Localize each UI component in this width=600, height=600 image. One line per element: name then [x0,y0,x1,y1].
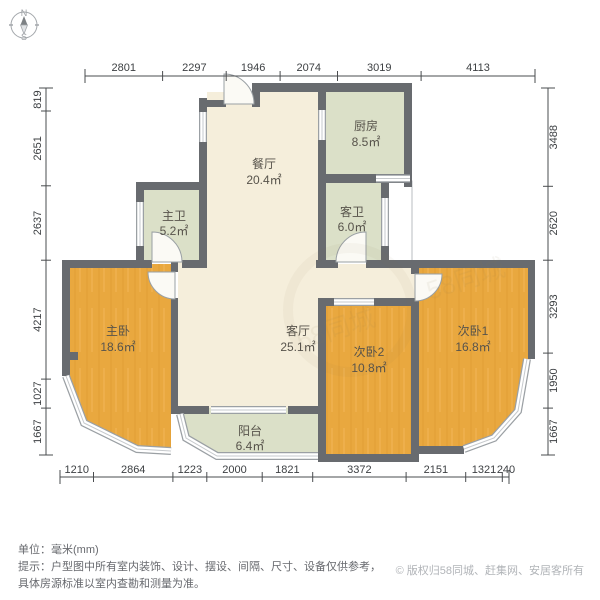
kitchen-floor [324,90,408,178]
dim-right-3: 1950 [548,368,560,392]
dim-bottom-6: 2151 [424,464,448,476]
room-area-bedroom1: 16.8㎡ [455,340,490,354]
room-label-master-bedroom: 主卧 [106,324,130,338]
dim-bottom-7: 1321 [472,464,496,476]
dim-bottom-3: 2000 [222,464,246,476]
dim-left-3: 4217 [32,307,44,331]
dim-top-1: 2297 [182,62,206,74]
dim-top-0: 2801 [112,62,136,74]
room-area-master-bath: 5.2㎡ [160,224,189,238]
dim-top-3: 2074 [297,62,321,74]
room-area-kitchen: 8.5㎡ [352,135,381,149]
dim-top-4: 3019 [367,62,391,74]
dim-right-4: 1667 [548,419,560,443]
dim-bottom-5: 3372 [347,464,371,476]
dim-bottom-0: 1210 [65,464,89,476]
room-label-balcony: 阳台 [238,423,262,438]
dim-left-1: 2651 [32,136,44,160]
dim-bottom-4: 1821 [275,464,299,476]
footer-notes: 单位：毫米(mm) 提示：户型图中所有室内装饰、设计、摆设、间隔、尺寸、设备仅供… [18,542,381,593]
room-label-guest-bath: 客卫 [340,204,364,219]
dim-left-4: 1027 [32,381,44,405]
dim-left-2: 2637 [32,211,44,235]
note-line-2: 具体房源标准以室内查勘和测量为准。 [18,576,381,593]
dim-right-2: 3293 [548,294,560,318]
room-area-living: 25.1㎡ [280,340,315,354]
entry-door [224,74,254,104]
room-label-kitchen: 厨房 [354,118,378,133]
dim-bottom-1: 2864 [121,464,145,476]
room-label-master-bath: 主卫 [162,209,186,223]
room-area-guest-bath: 6.0㎡ [338,220,367,234]
floorplan-page: N S [0,0,600,600]
dim-left-5: 1667 [32,419,44,443]
compass-icon: N S [9,8,39,42]
room-label-bedroom2: 次卧2 [354,345,385,359]
dim-right-0: 3488 [548,125,560,149]
unit-label: 单位：毫米(mm) [18,542,381,559]
dim-top-5: 4113 [466,62,490,74]
compass-north-label: N [21,8,28,18]
note-line-1: 提示：户型图中所有室内装饰、设计、摆设、间隔、尺寸、设备仅供参考， [18,559,381,576]
floorplan-canvas: N S [0,0,600,540]
room-area-balcony: 6.4㎡ [236,439,265,453]
room-area-master-bedroom: 18.6㎡ [100,340,135,354]
room-area-dining: 20.4㎡ [246,173,281,187]
dim-bottom-2: 1223 [178,464,202,476]
room-label-living: 客厅 [286,323,310,338]
room-label-bedroom1: 次卧1 [458,324,489,338]
service-area [387,181,412,262]
room-label-dining: 餐厅 [252,156,276,171]
copyright-text: © 版权归58同城、赶集网、安居客所有 [396,562,584,578]
compass-south-label: S [21,32,27,42]
dim-top-2: 1946 [241,62,265,74]
room-area-bedroom2: 10.8㎡ [351,361,386,375]
dim-bottom-8: 240 [497,464,515,476]
dim-left-0: 819 [32,90,44,108]
dim-right-1: 2620 [548,211,560,235]
